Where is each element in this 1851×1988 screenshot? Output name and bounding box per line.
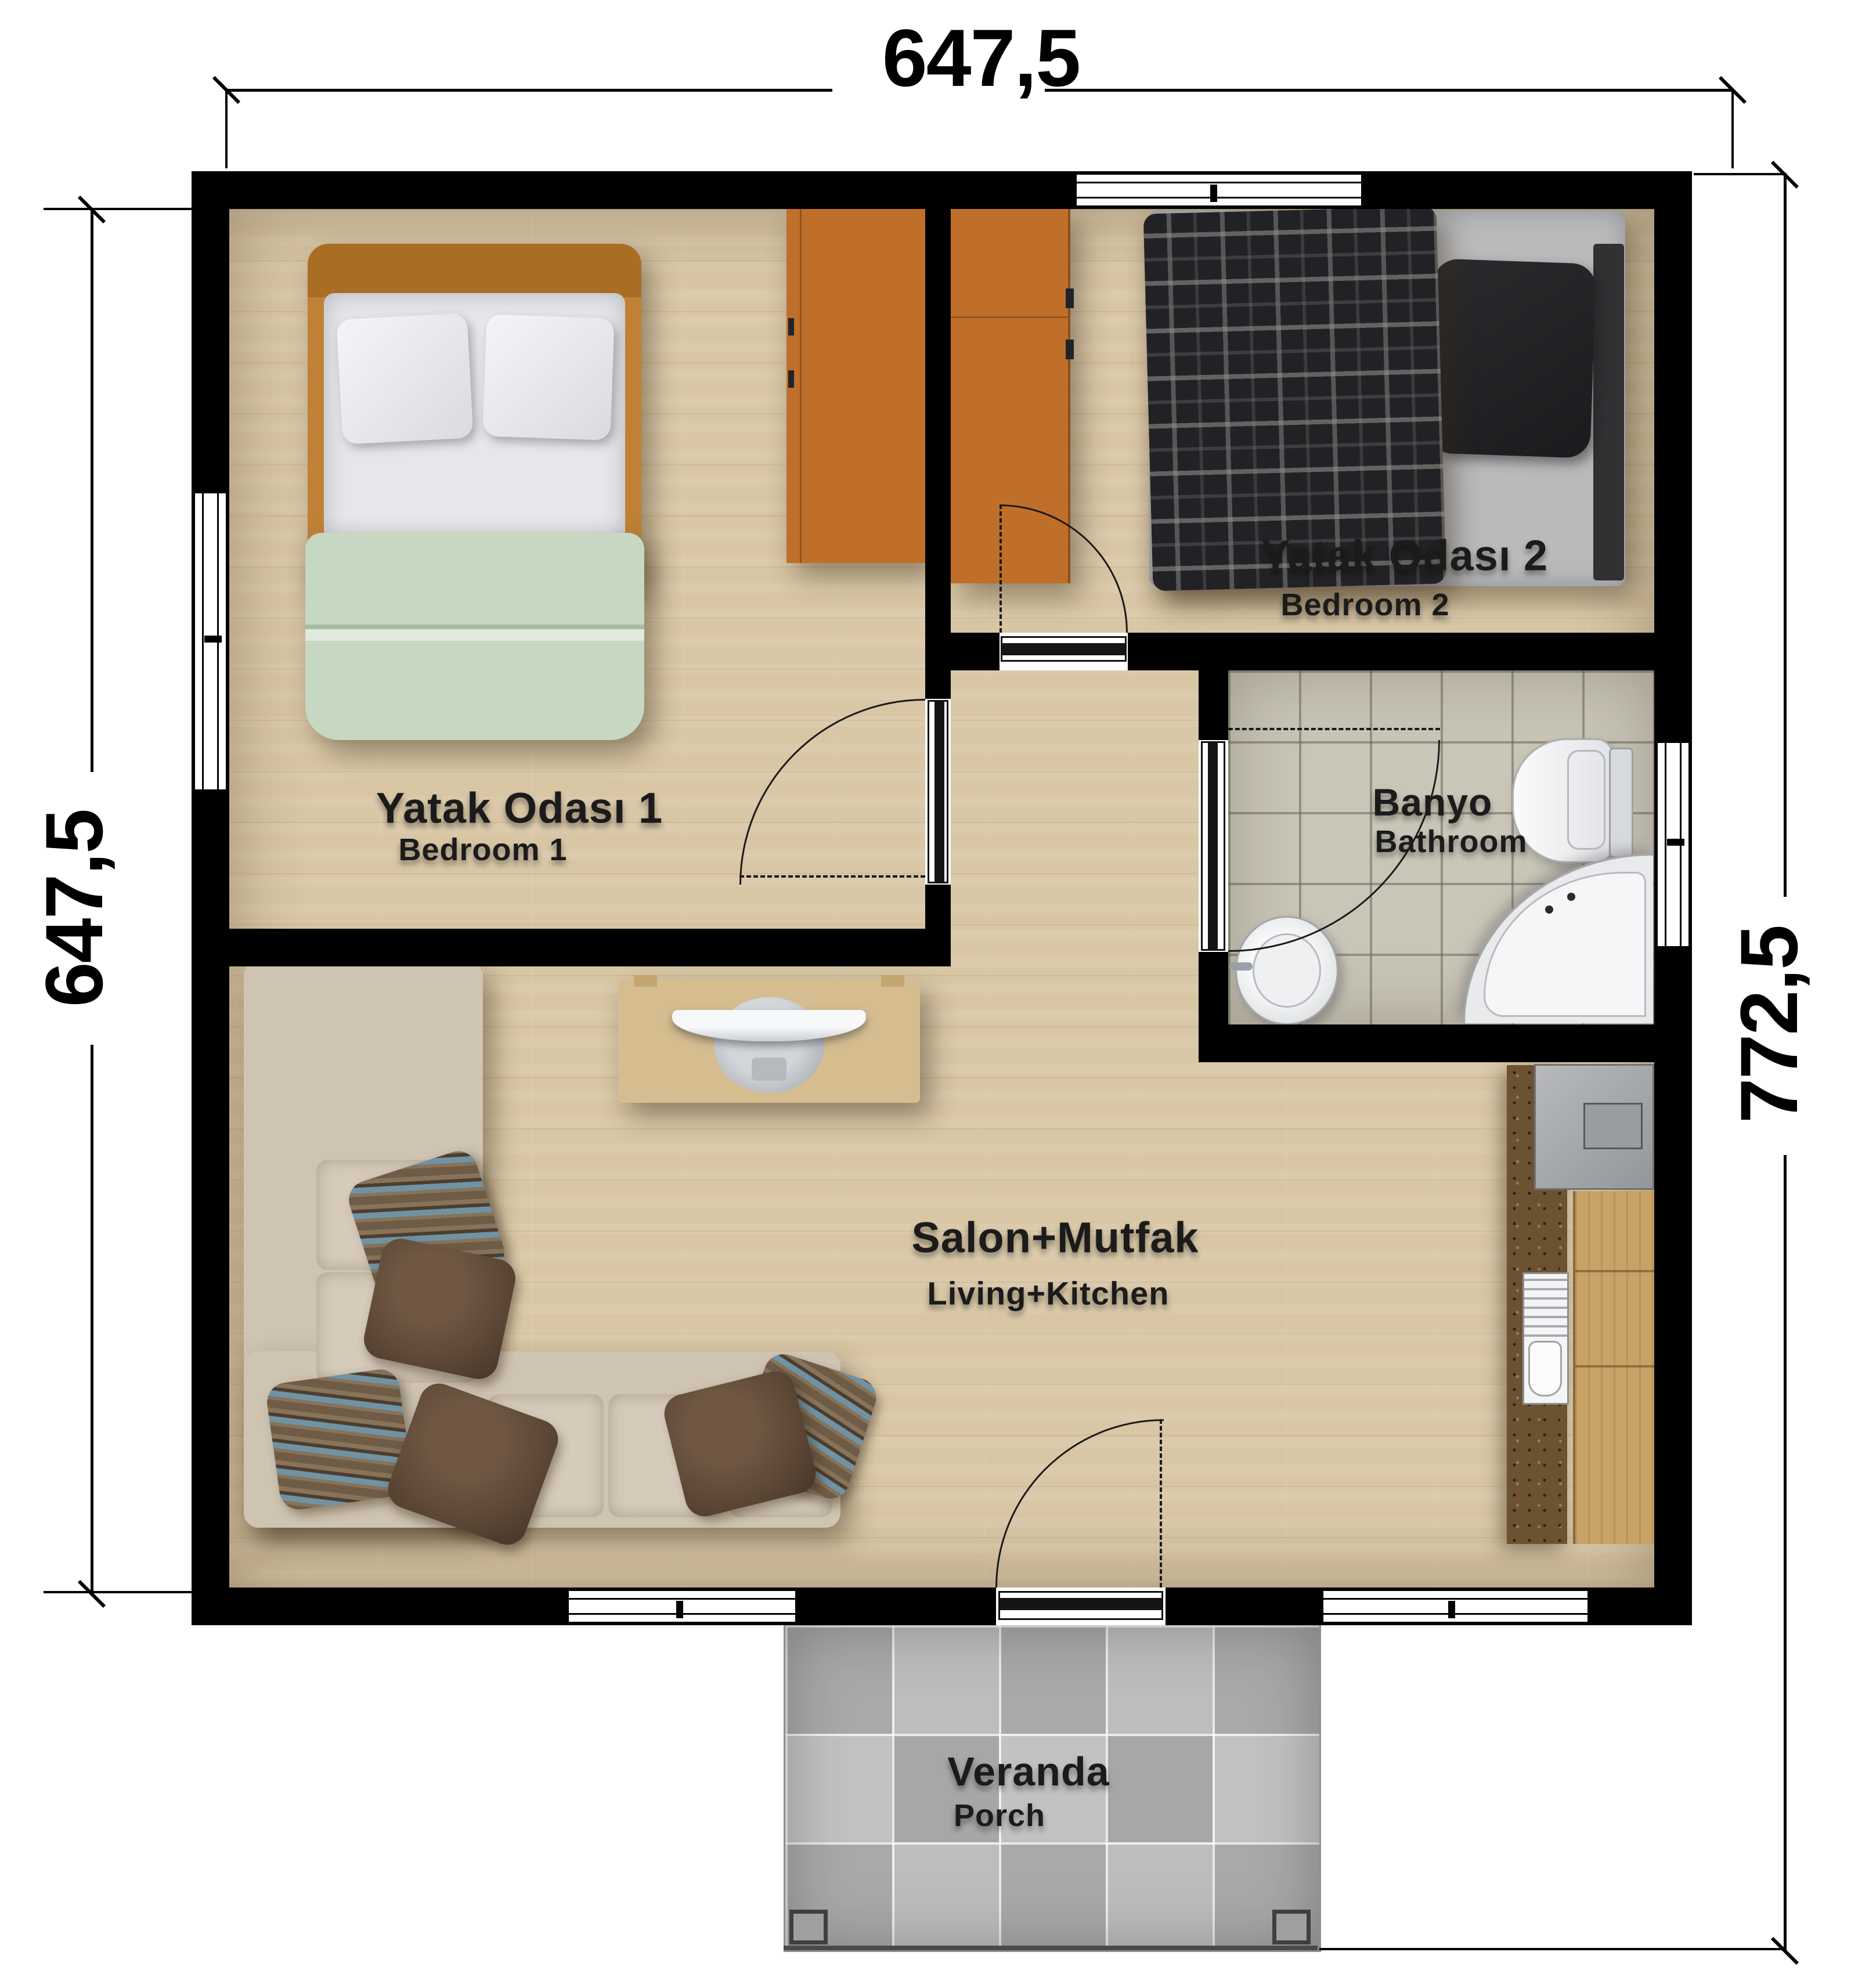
dim-left-ext-top xyxy=(44,208,192,210)
window-living-bottom-right xyxy=(1323,1591,1587,1622)
window-bedroom2-top xyxy=(1077,175,1361,205)
bed-2-headboard xyxy=(1593,244,1624,580)
bed-1-pillow-right xyxy=(482,314,614,441)
wall-outer-left xyxy=(192,171,229,1625)
dim-top-line-left xyxy=(226,89,832,92)
label-living-en: Living+Kitchen xyxy=(928,1275,1170,1312)
wardrobe-2-handle-bottom xyxy=(1066,340,1074,359)
bed-1-pillow-left xyxy=(337,313,474,444)
bathtub-jet xyxy=(1545,905,1553,914)
wardrobe-1-handle-top xyxy=(788,318,794,335)
window-sash-mark xyxy=(1448,1601,1455,1618)
bathroom-faucet xyxy=(1229,962,1253,970)
kitchen-cabinet xyxy=(1573,1191,1654,1544)
dim-top-line-right xyxy=(1045,89,1733,92)
dim-right-line-top xyxy=(1784,174,1787,897)
wardrobe-bedroom-1 xyxy=(786,209,928,563)
veranda-post-right xyxy=(1272,1910,1311,1944)
label-bathroom-tr: Banyo xyxy=(1373,780,1493,824)
dim-left-ext-bottom xyxy=(44,1591,192,1593)
door-open-leaf-bathroom xyxy=(1228,728,1440,730)
dim-top-ext-right xyxy=(1731,90,1734,168)
wardrobe-2-handle-top xyxy=(1066,288,1074,308)
dim-right-ext-top xyxy=(1694,173,1787,175)
wardrobe-2-seam xyxy=(951,316,1068,318)
window-sash-mark xyxy=(1210,185,1217,202)
label-veranda-en: Porch xyxy=(954,1798,1045,1834)
wall-bedroom1-bottom xyxy=(229,929,951,966)
window-sash-mark xyxy=(204,636,222,643)
bed-2-pillow xyxy=(1427,258,1597,459)
toilet-seat-line xyxy=(1567,750,1605,850)
door-leaf-bedroom2 xyxy=(1001,636,1127,662)
dim-top-value: 647,5 xyxy=(882,11,1080,105)
dim-right-line-bottom xyxy=(1784,1155,1787,1950)
kitchen-sink-basin xyxy=(1528,1341,1562,1397)
window-sash-mark xyxy=(676,1601,683,1618)
dim-right-ext-bottom xyxy=(1319,1948,1787,1950)
label-bedroom2-en: Bedroom 2 xyxy=(1280,587,1449,623)
dim-left-value: 647,5 xyxy=(27,810,121,1007)
door-leaf-bedroom1 xyxy=(928,700,948,883)
appliance-door xyxy=(1583,1103,1643,1149)
tv-console-foot-right xyxy=(881,975,904,987)
dim-right-value: 772,5 xyxy=(1722,926,1816,1123)
toilet-tank xyxy=(1609,748,1633,858)
label-bathroom-en: Bathroom xyxy=(1375,824,1528,860)
dim-top-ext-left xyxy=(225,90,228,168)
window-sash-mark xyxy=(1667,839,1684,846)
tv-console-foot-left xyxy=(634,975,657,987)
veranda-post-left xyxy=(789,1910,828,1944)
label-bedroom2-tr: Yatak Odası 2 xyxy=(1261,531,1548,580)
label-bedroom1-tr: Yatak Odası 1 xyxy=(376,784,663,833)
floor-plan: Yatak Odası 1 Bedroom 1 Yatak Odası 2 Be… xyxy=(0,0,1851,1988)
door-leaf-entrance xyxy=(998,1591,1163,1620)
bed-1-duvet xyxy=(305,533,644,740)
label-living-tr: Salon+Mutfak xyxy=(911,1213,1199,1262)
bathtub-jet xyxy=(1567,893,1575,901)
tv-stand xyxy=(752,1058,786,1081)
veranda-edge xyxy=(784,1946,1318,1950)
wall-bathroom-bottom xyxy=(1199,1024,1654,1062)
door-leaf-bathroom xyxy=(1201,741,1225,951)
dim-left-line-bottom xyxy=(91,1045,93,1593)
label-veranda-tr: Veranda xyxy=(947,1748,1109,1795)
wardrobe-1-handle-bottom xyxy=(788,370,794,388)
wardrobe-1-seam xyxy=(800,209,802,563)
wall-outer-top xyxy=(192,171,1692,209)
label-bedroom1-en: Bedroom 1 xyxy=(398,832,567,868)
dim-left-line-top xyxy=(91,209,93,772)
